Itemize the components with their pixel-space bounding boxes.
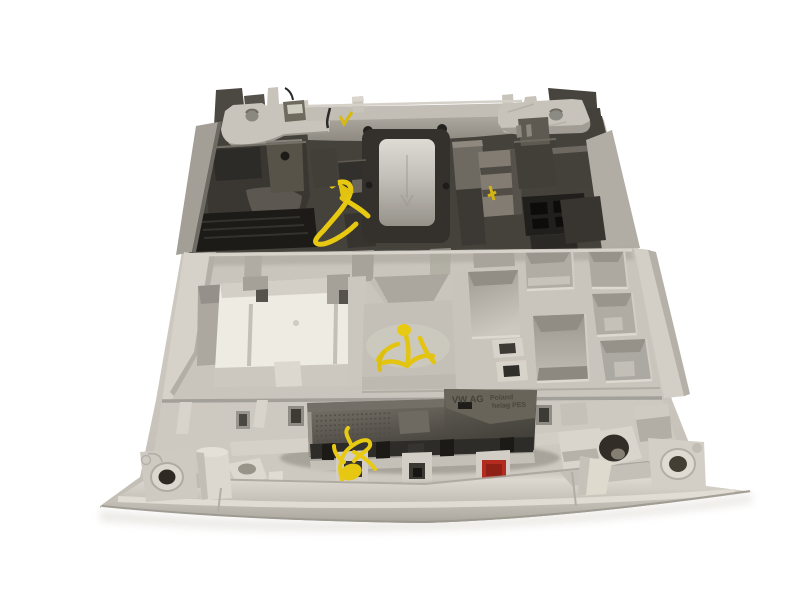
svg-text:VW AG: VW AG <box>452 394 484 406</box>
svg-text:Poland: Poland <box>490 394 514 402</box>
svg-text:helag PES: helag PES <box>492 402 527 410</box>
